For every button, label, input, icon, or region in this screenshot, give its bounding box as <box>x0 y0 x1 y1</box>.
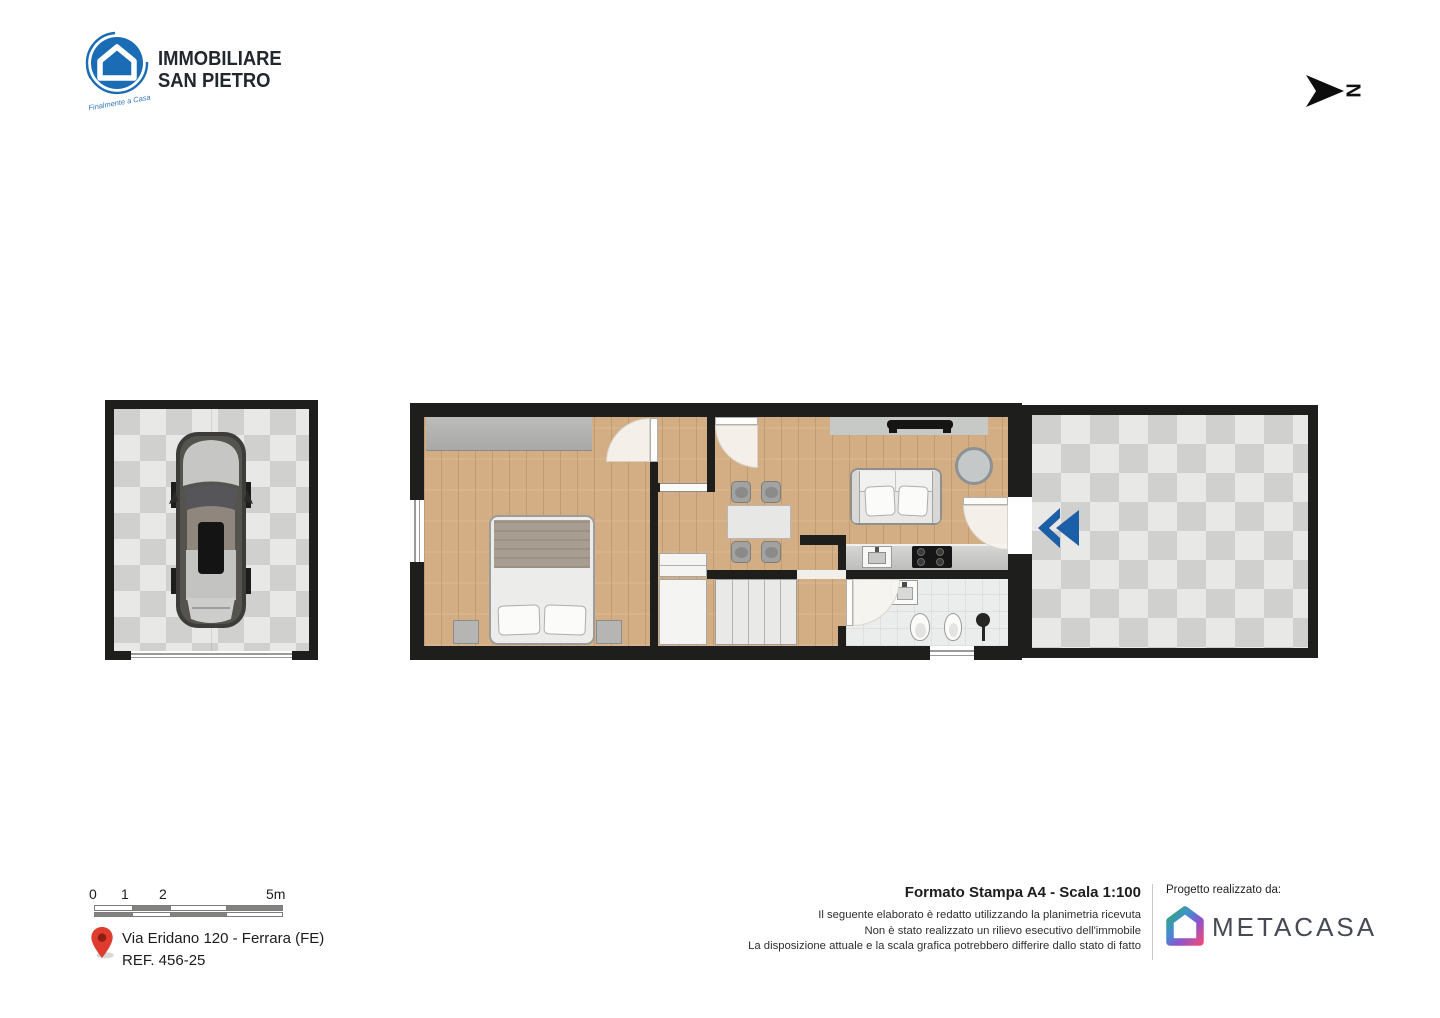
entrance-opening <box>1008 497 1022 554</box>
terrace <box>1022 405 1318 658</box>
company-name-line2: SAN PIETRO <box>158 70 282 92</box>
sofa-pillow <box>864 485 896 517</box>
double-bed <box>489 515 595 645</box>
hall-shelf <box>659 553 707 577</box>
north-arrow-icon <box>1305 74 1345 110</box>
apartment-floorplan <box>410 403 1022 660</box>
entrance-door <box>963 497 1008 505</box>
company-logo: Finalmente a Casa IMMOBILIARE SAN PIETRO <box>80 26 400 116</box>
wall-segment <box>838 626 846 646</box>
dining-chair <box>731 541 751 563</box>
sofa-armrest <box>932 471 940 523</box>
sofa-armrest <box>852 471 860 523</box>
scale-label: 1 <box>121 886 129 902</box>
bidet <box>944 613 962 641</box>
bedroom-door <box>650 418 658 462</box>
dining-chair <box>761 481 781 503</box>
metacasa-house-icon <box>1166 906 1204 946</box>
wall-bench-foot <box>889 428 897 433</box>
bedroom-window <box>410 500 424 562</box>
wall-segment <box>707 417 715 483</box>
sliding-wardrobe <box>715 579 797 645</box>
wall-segment <box>309 400 318 660</box>
garage-room <box>105 400 318 660</box>
wall-segment <box>1022 405 1318 415</box>
credit-brand: METACASA <box>1212 912 1377 943</box>
dining-chair <box>731 481 751 503</box>
bathroom-door <box>846 579 853 626</box>
cooktop <box>912 546 952 568</box>
dining-chair <box>761 541 781 563</box>
wall-segment <box>1022 648 1318 658</box>
bed-blanket <box>494 520 590 568</box>
company-name-line1: IMMOBILIARE <box>158 48 282 70</box>
print-format-title: Formato Stampa A4 - Scala 1:100 <box>560 884 1141 901</box>
sofa <box>850 468 942 525</box>
dining-table <box>727 505 791 539</box>
disclaimer-line: La disposizione attuale e la scala grafi… <box>560 939 1141 955</box>
compass: N <box>1305 70 1375 116</box>
scale-label: 5m <box>266 886 285 902</box>
scale-label: 0 <box>89 886 97 902</box>
floor-drain <box>976 613 990 627</box>
nightstand <box>453 620 479 644</box>
bathroom-window <box>930 646 974 660</box>
toilet <box>910 613 930 641</box>
wall-segment <box>105 400 114 660</box>
wall-segment <box>410 403 1022 417</box>
round-side-table <box>955 447 993 485</box>
location-block: Via Eridano 120 - Ferrara (FE) REF. 456-… <box>88 925 488 985</box>
hall-door <box>715 417 758 425</box>
garage-door <box>131 651 292 660</box>
wall-segment <box>707 570 797 579</box>
bedroom-wardrobe <box>426 417 592 451</box>
wall-bench-foot <box>943 428 951 433</box>
credit-label: Progetto realizzato da: <box>1166 884 1436 896</box>
disclaimer-line: Il seguente elaborato è redatto utilizza… <box>560 908 1141 924</box>
terrace-opening <box>1022 497 1032 554</box>
hall-cabinet <box>659 579 707 645</box>
address: Via Eridano 120 - Ferrara (FE) REF. 456-… <box>122 928 324 972</box>
car-top-view <box>169 430 253 630</box>
cased-opening <box>797 570 846 579</box>
company-name: IMMOBILIARE SAN PIETRO <box>158 48 282 92</box>
kitchen-sink <box>862 546 892 568</box>
address-line1: Via Eridano 120 - Ferrara (FE) <box>122 928 324 950</box>
print-info: Formato Stampa A4 - Scala 1:100 Il segue… <box>560 884 1141 955</box>
scale-label: 2 <box>159 886 167 902</box>
entrance-double-chevron-icon <box>1034 507 1080 549</box>
bed-pillow <box>543 604 586 635</box>
bed-pillow <box>497 604 540 635</box>
wall-segment <box>105 400 318 409</box>
floor-drain-stem <box>982 626 985 641</box>
disclaimer-line: Non è stato realizzato un rilievo esecut… <box>560 924 1141 940</box>
north-label: N <box>1341 83 1364 97</box>
credit-block: Progetto realizzato da: METACASA <box>1166 884 1436 964</box>
cased-opening <box>660 483 707 492</box>
sofa-pillow <box>897 485 929 517</box>
wall-segment <box>1308 405 1318 658</box>
nightstand <box>596 620 622 644</box>
footer-divider <box>1152 884 1153 960</box>
wall-segment <box>846 570 1008 579</box>
map-pin-icon <box>90 927 114 959</box>
address-line2: REF. 456-25 <box>122 950 324 972</box>
